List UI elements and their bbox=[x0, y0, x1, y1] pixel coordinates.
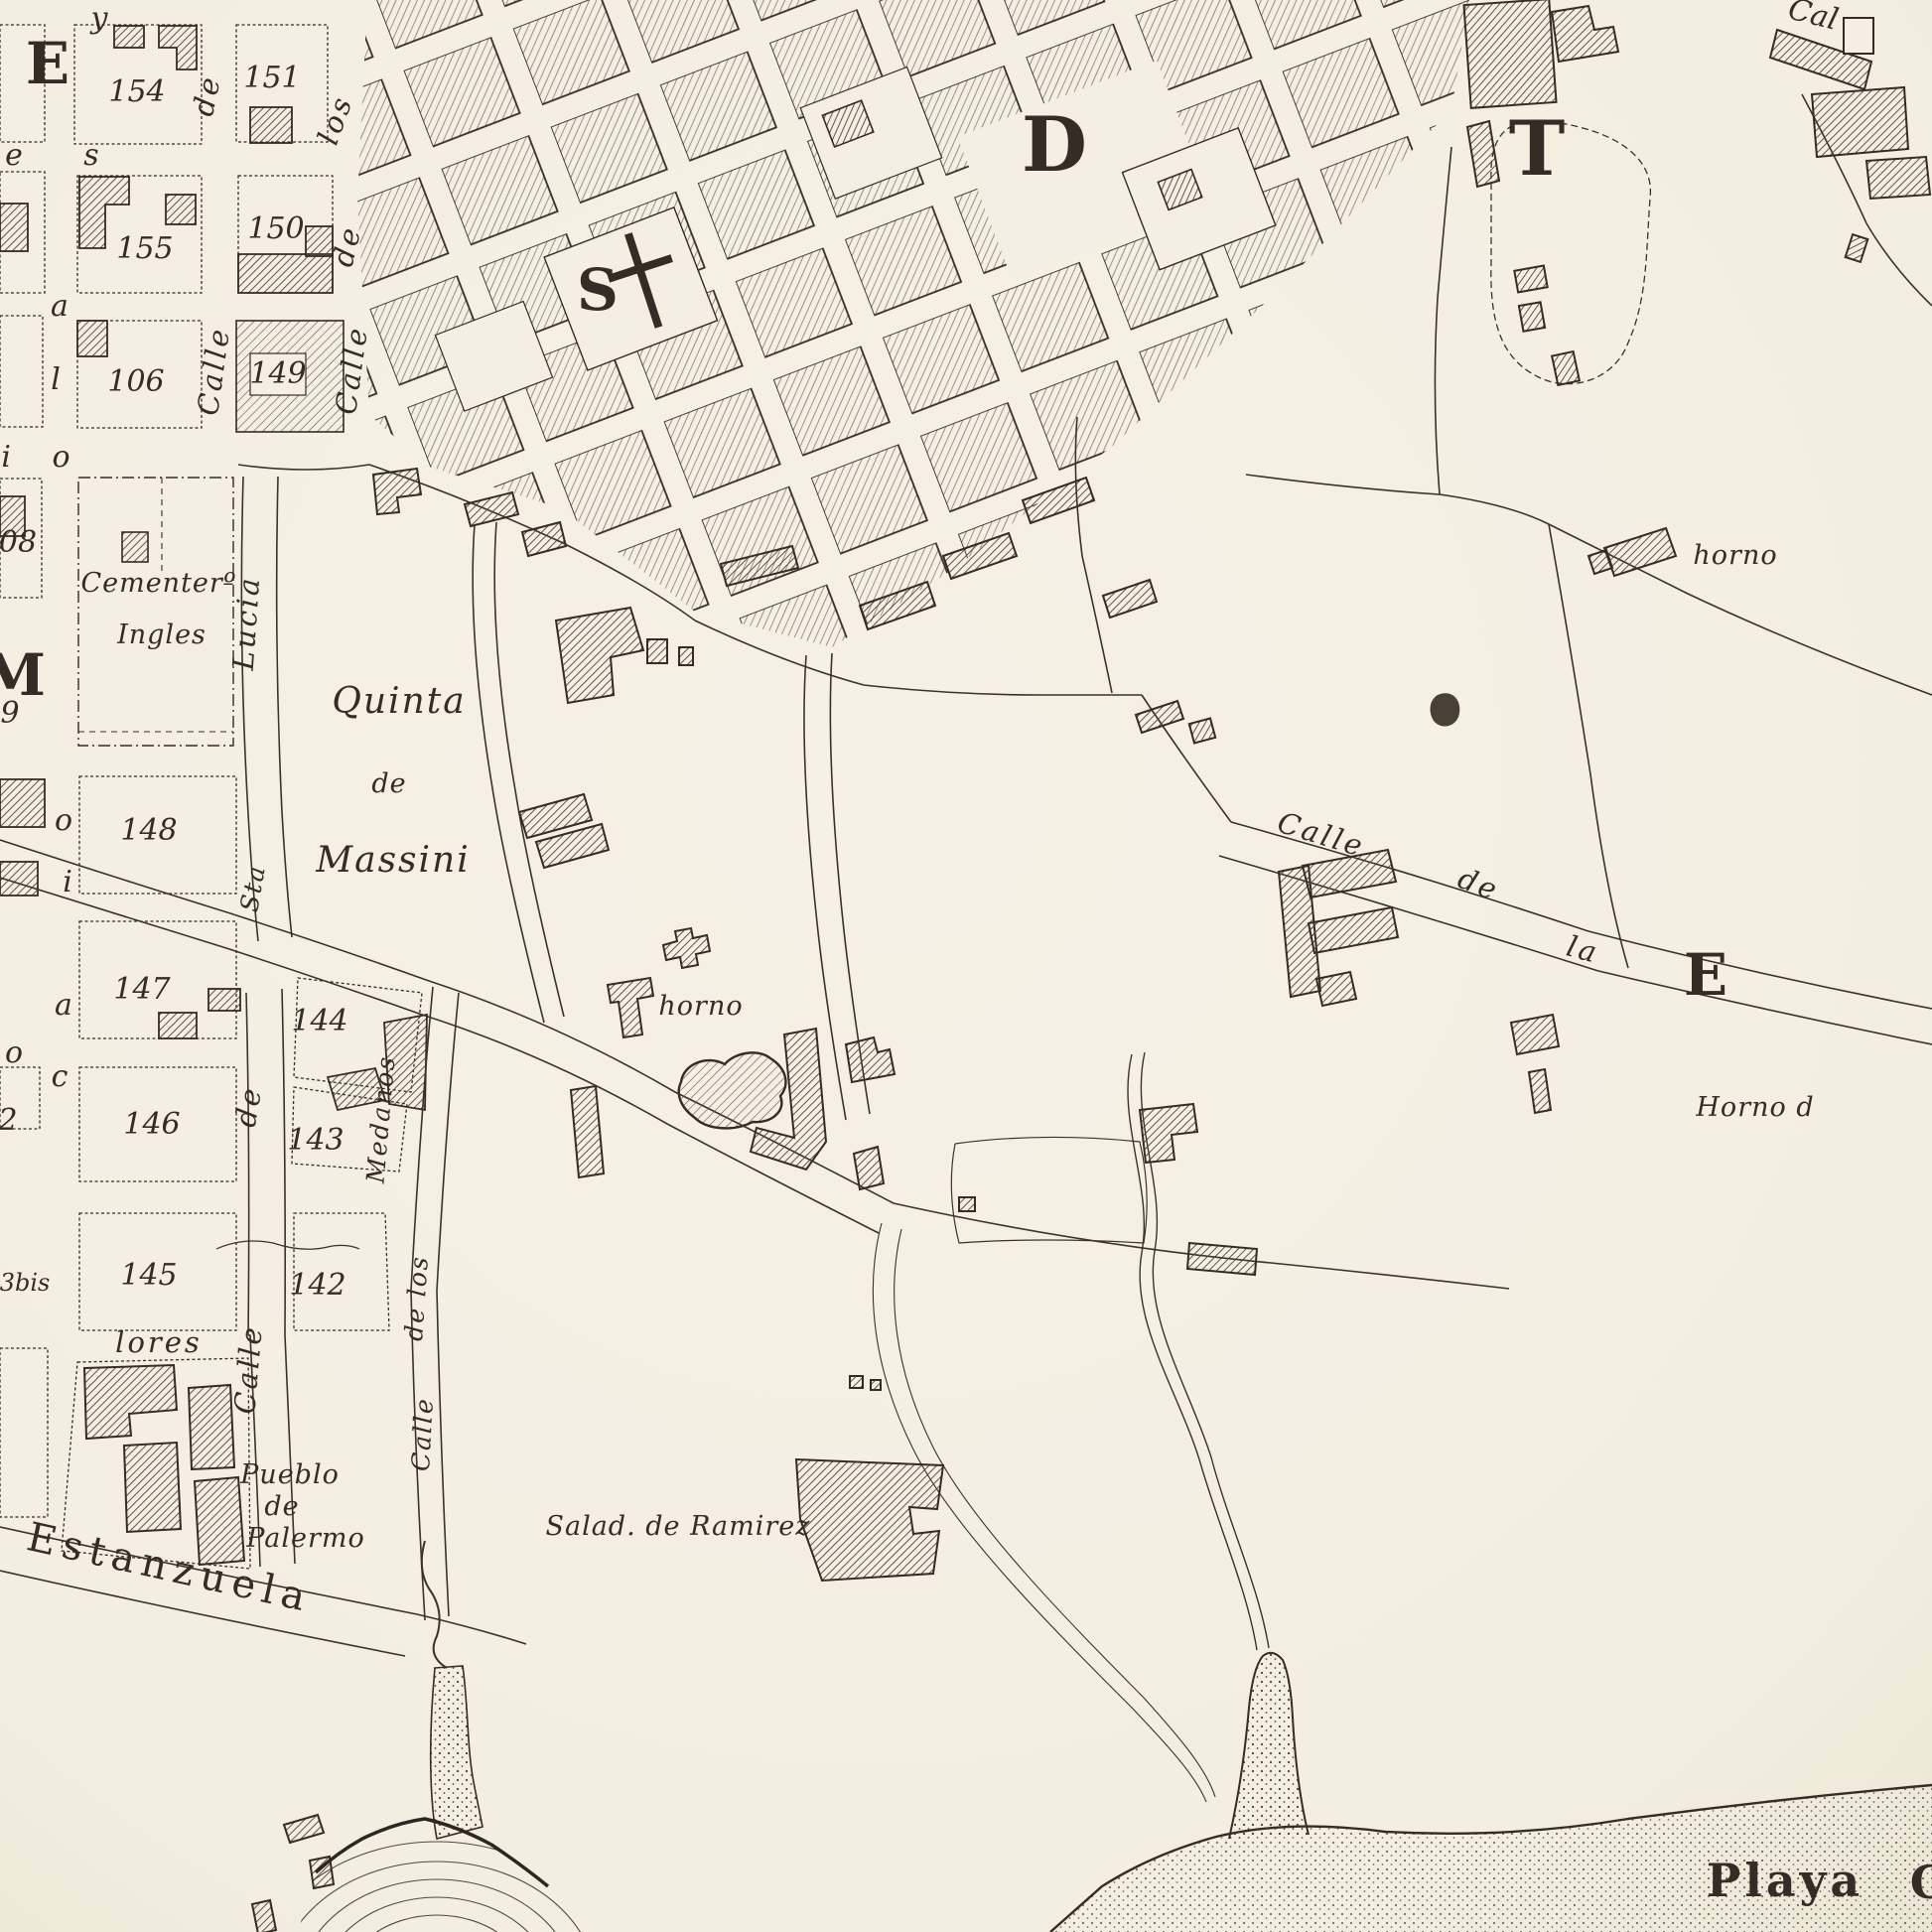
pond bbox=[679, 1052, 786, 1128]
frag-o1: o bbox=[55, 803, 72, 838]
block-108: 08 bbox=[0, 525, 37, 560]
letter-t: T bbox=[1509, 104, 1566, 193]
pueblo-label-1: Pueblo bbox=[239, 1459, 340, 1490]
horno-se-label: Horno d bbox=[1695, 1092, 1814, 1123]
frag-io: i o bbox=[1, 440, 85, 475]
letter-d: D bbox=[1022, 100, 1087, 189]
frag-a: a bbox=[51, 289, 69, 324]
block-3bis: 3bis bbox=[0, 1269, 50, 1297]
playa-frag-label: C bbox=[1910, 1856, 1932, 1909]
block-149: 149 bbox=[249, 356, 306, 391]
cemetery-label-1: Cementerº bbox=[80, 568, 236, 599]
block-106: 106 bbox=[107, 364, 164, 399]
street-flores: lores bbox=[115, 1325, 203, 1359]
tree-blob bbox=[1431, 693, 1460, 726]
salad-label: Salad. de Ramirez bbox=[545, 1511, 810, 1542]
frag-2: 2 bbox=[0, 1103, 18, 1138]
english-cemetery bbox=[78, 478, 233, 746]
frag-s: s bbox=[83, 138, 98, 173]
map-canvas: D T M E E S 154 151 155 150 106 149 148 … bbox=[0, 0, 1932, 1932]
street-calle-medanos: Calle bbox=[406, 1396, 439, 1471]
frag-c1: c bbox=[52, 1059, 69, 1094]
block-147: 147 bbox=[113, 972, 171, 1007]
engraved-map: D T M E E S 154 151 155 150 106 149 148 … bbox=[0, 0, 1932, 1932]
block-154: 154 bbox=[108, 74, 165, 109]
street-de-los-medanos: de los bbox=[399, 1254, 434, 1341]
block-144: 144 bbox=[291, 1004, 347, 1038]
frag-a2: a bbox=[55, 988, 72, 1023]
cemetery-label-2: Ingles bbox=[116, 620, 207, 650]
playa-label: Playa bbox=[1707, 1854, 1863, 1907]
frag-o2: o bbox=[5, 1035, 23, 1070]
block-142: 142 bbox=[289, 1268, 345, 1303]
street-de-3: de bbox=[228, 1083, 269, 1130]
block-9: 9 bbox=[0, 696, 19, 731]
block-150: 150 bbox=[247, 211, 304, 246]
frag-e: e bbox=[5, 138, 23, 173]
block-146: 146 bbox=[123, 1107, 180, 1142]
horno-mid-label: horno bbox=[658, 991, 743, 1022]
letter-e-right: E bbox=[1684, 941, 1727, 1009]
block-145: 145 bbox=[120, 1258, 177, 1293]
quinta-label-2: de bbox=[371, 768, 406, 799]
horno-ne-label: horno bbox=[1693, 540, 1777, 571]
block-151: 151 bbox=[243, 61, 300, 95]
quinta-label-3: Massini bbox=[315, 840, 471, 881]
pueblo-label-2: de bbox=[264, 1491, 299, 1522]
block-148: 148 bbox=[120, 813, 177, 848]
letter-e-topleft: E bbox=[26, 30, 69, 97]
frag-i1: i bbox=[63, 865, 72, 899]
frag-y: y bbox=[89, 1, 109, 36]
quinta-label-1: Quinta bbox=[332, 681, 466, 722]
frag-l: l bbox=[51, 362, 61, 397]
church-letter-s: S bbox=[577, 256, 619, 324]
block-155: 155 bbox=[116, 231, 173, 266]
pueblo-label-3: Palermo bbox=[245, 1523, 364, 1554]
block-143: 143 bbox=[287, 1123, 344, 1158]
